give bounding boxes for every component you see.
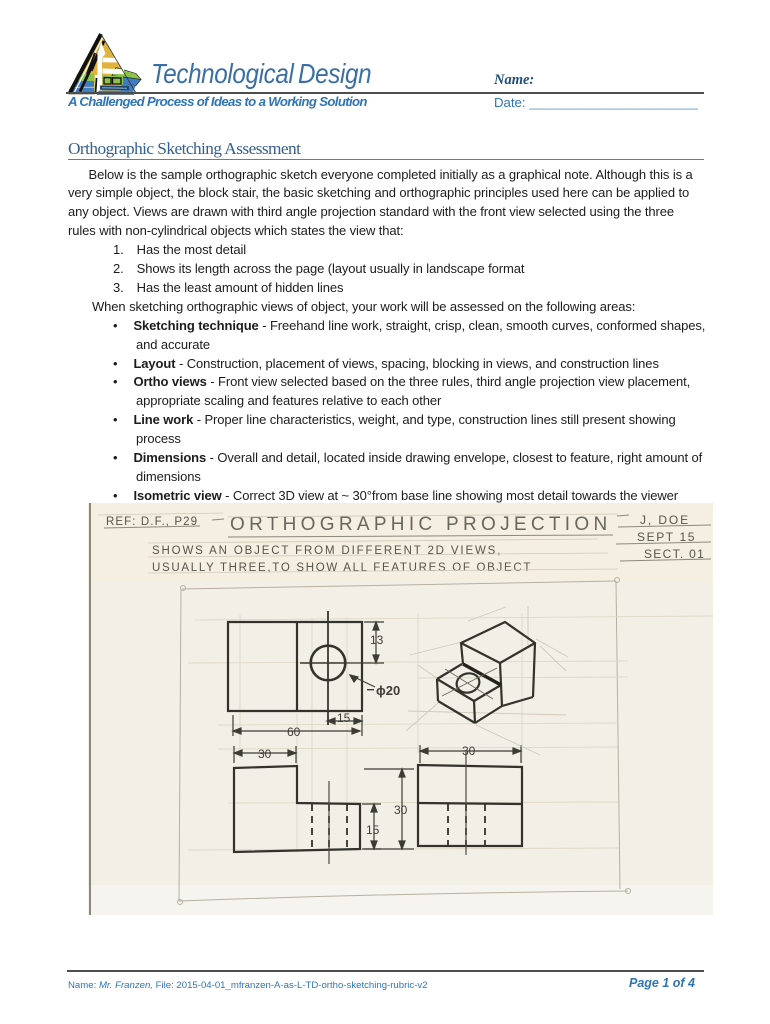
svg-text:30: 30 bbox=[394, 803, 408, 817]
svg-text:13: 13 bbox=[370, 633, 384, 647]
svg-text:ϕ20: ϕ20 bbox=[376, 683, 400, 698]
svg-text:60: 60 bbox=[287, 725, 301, 739]
svg-text:ORTHOGRAPHIC PROJECTION: ORTHOGRAPHIC PROJECTION bbox=[230, 514, 611, 535]
svg-text:J, DOE: J, DOE bbox=[640, 513, 690, 527]
svg-text:30: 30 bbox=[462, 744, 476, 758]
svg-text:15: 15 bbox=[366, 823, 380, 837]
svg-text:SEPT 15: SEPT 15 bbox=[637, 530, 696, 544]
svg-text:30: 30 bbox=[258, 747, 272, 761]
svg-text:15: 15 bbox=[337, 711, 351, 725]
